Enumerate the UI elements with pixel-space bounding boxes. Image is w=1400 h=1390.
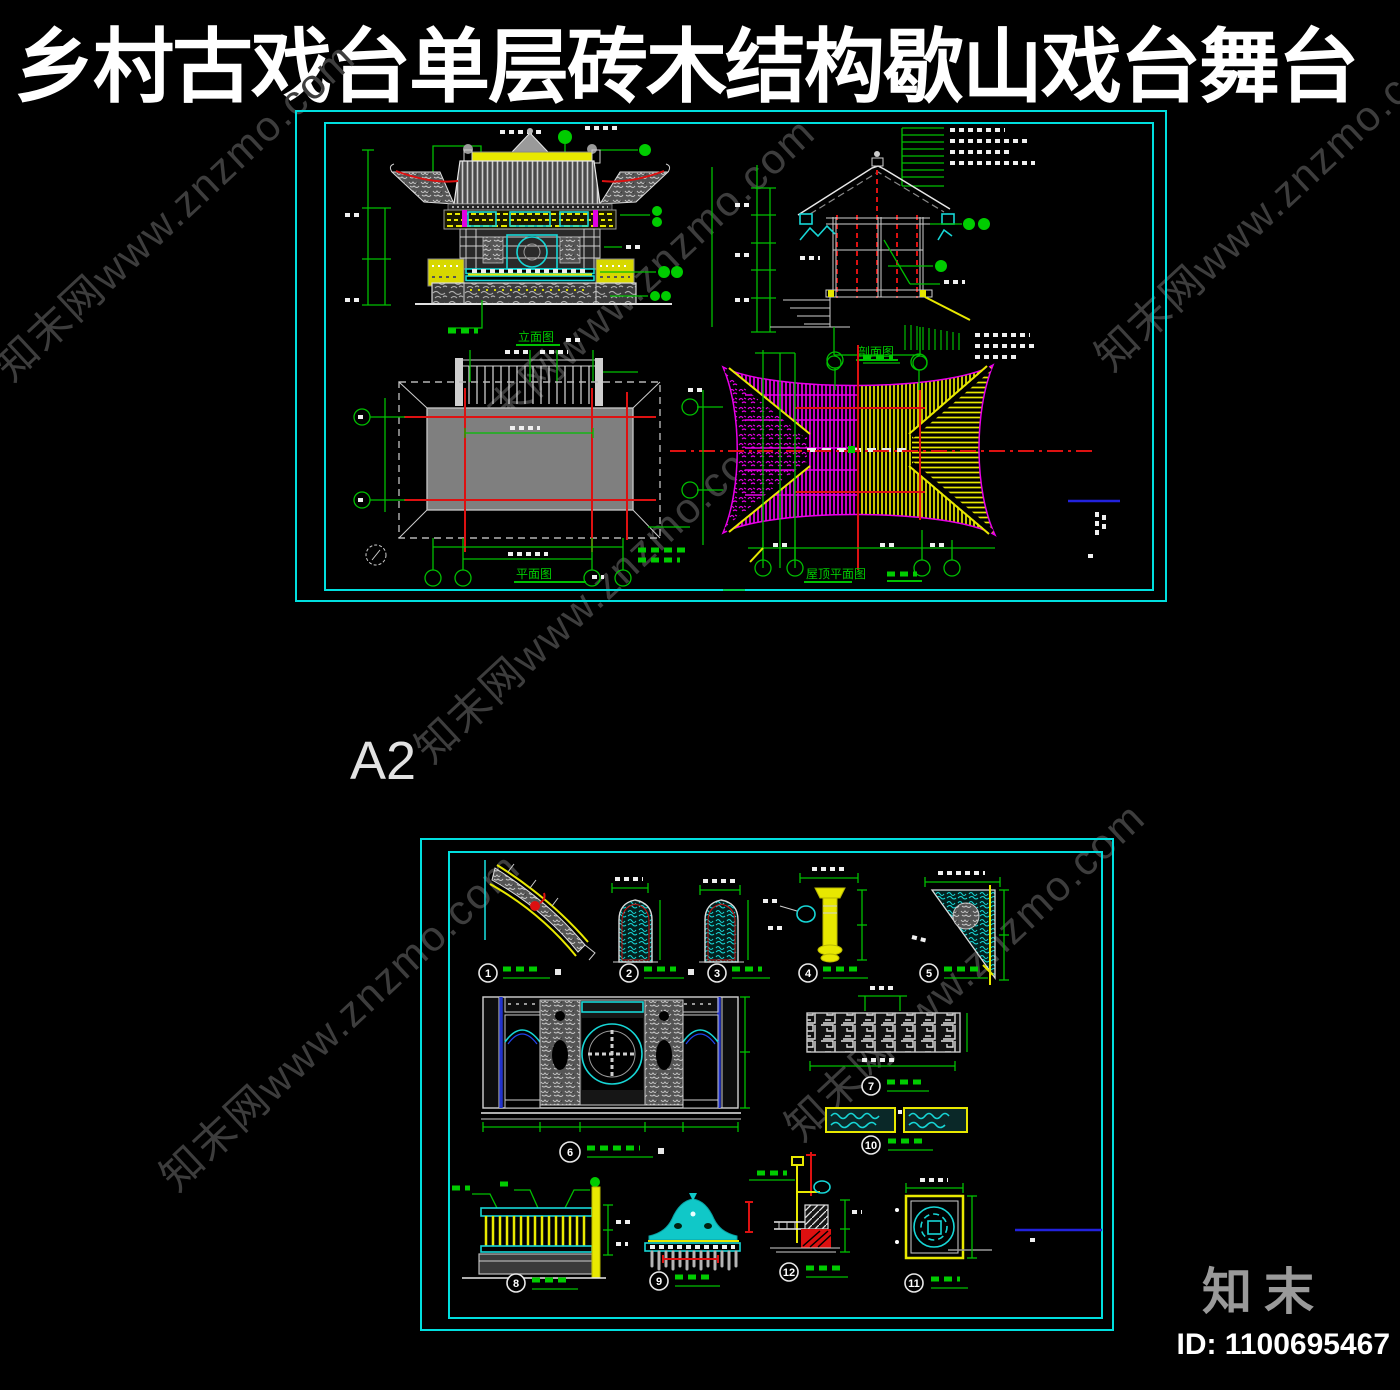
section-view: 剖面图 (735, 128, 1035, 370)
brand-logo: 知末 (1202, 1252, 1326, 1324)
svg-text:9: 9 (656, 1276, 662, 1288)
svg-text:11: 11 (908, 1278, 920, 1290)
roof-ridge-ornament (463, 128, 597, 154)
detail-carved-stone-2 (612, 879, 660, 962)
detail-label-2: 2 (620, 964, 694, 982)
svg-text:立面图: 立面图 (518, 329, 554, 344)
elevation-bottom-leaders (448, 300, 706, 390)
svg-text:6: 6 (567, 1147, 573, 1159)
cad-drawing: .c{stroke:#00dfdf;fill:none;stroke-width… (0, 0, 1400, 1390)
svg-text:7: 7 (868, 1081, 874, 1093)
eave-wing-right (600, 164, 670, 204)
sheet-size-label: A2 (350, 730, 416, 792)
elevation-label: 立面图 (516, 329, 580, 345)
detail-label-3: 3 (708, 964, 770, 982)
section-dims-left (735, 165, 776, 332)
plan-notes (638, 527, 690, 560)
roof-plan-labels: 屋顶平面图 (804, 567, 922, 582)
eave-wing-left (390, 164, 458, 204)
detail-label-6: 6 (560, 1142, 664, 1162)
section-base (770, 290, 1035, 357)
detail-lattice (807, 988, 967, 1071)
ridge-beam (472, 152, 592, 161)
detail-gate-panel (481, 997, 750, 1132)
svg-text:10: 10 (865, 1140, 877, 1152)
plan-stage-slab (427, 408, 633, 510)
detail-label-12: 12 (780, 1263, 848, 1281)
detail-coin-panel (895, 1180, 992, 1258)
roof-rafters (454, 161, 600, 204)
floor-plan-view: 平面图 (354, 350, 690, 586)
plan-compass (366, 545, 386, 565)
detail-crest (645, 1193, 753, 1269)
detail-label-9: 9 (650, 1272, 720, 1290)
plan-railing (455, 350, 603, 406)
detail-label-10: 10 (862, 1136, 933, 1154)
svg-text:5: 5 (926, 968, 932, 980)
detail-eave-slope (485, 860, 595, 960)
svg-text:8: 8 (513, 1278, 519, 1290)
carved-beam-band (444, 210, 616, 229)
svg-text:1: 1 (485, 968, 491, 980)
detail-railing (452, 1177, 630, 1278)
svg-text:4: 4 (805, 968, 812, 980)
svg-text:3: 3 (714, 968, 720, 980)
section-roof (798, 151, 950, 215)
section-dim-comb-top (902, 128, 1035, 186)
detail-label-8: 8 (507, 1274, 578, 1292)
detail-base-section (749, 1152, 862, 1252)
svg-text:屋顶平面图: 屋顶平面图 (806, 567, 866, 581)
svg-text:12: 12 (783, 1267, 795, 1279)
svg-text:2: 2 (626, 968, 632, 980)
detail-label-7: 7 (862, 1077, 929, 1095)
stone-base (415, 283, 672, 304)
detail-label-4: 4 (799, 964, 868, 982)
front-elevation-view: 立面图 (345, 128, 712, 390)
section-columns (826, 170, 930, 298)
sheet-1: 立面图 (296, 111, 1166, 601)
detail-label-1: 1 (479, 964, 561, 982)
detail-label-11: 11 (905, 1274, 968, 1292)
detail-plaques (826, 1108, 967, 1132)
detail-carved-stone-3 (699, 881, 748, 962)
sheet-2: 1 2 3 4 5 (421, 839, 1113, 1330)
plan-label: 平面图 (514, 567, 604, 582)
sheet1-titleblock-marks (1068, 501, 1120, 556)
detail-label-5: 5 (920, 964, 988, 982)
svg-text:平面图: 平面图 (516, 567, 552, 581)
stage-floor-band (466, 269, 594, 281)
asset-id: ID: 1100695467 (990, 1328, 1390, 1362)
roof-plan-view: 屋顶平面图 (670, 345, 1120, 590)
detail-column-cap (763, 869, 867, 962)
stage-wall (460, 229, 600, 269)
